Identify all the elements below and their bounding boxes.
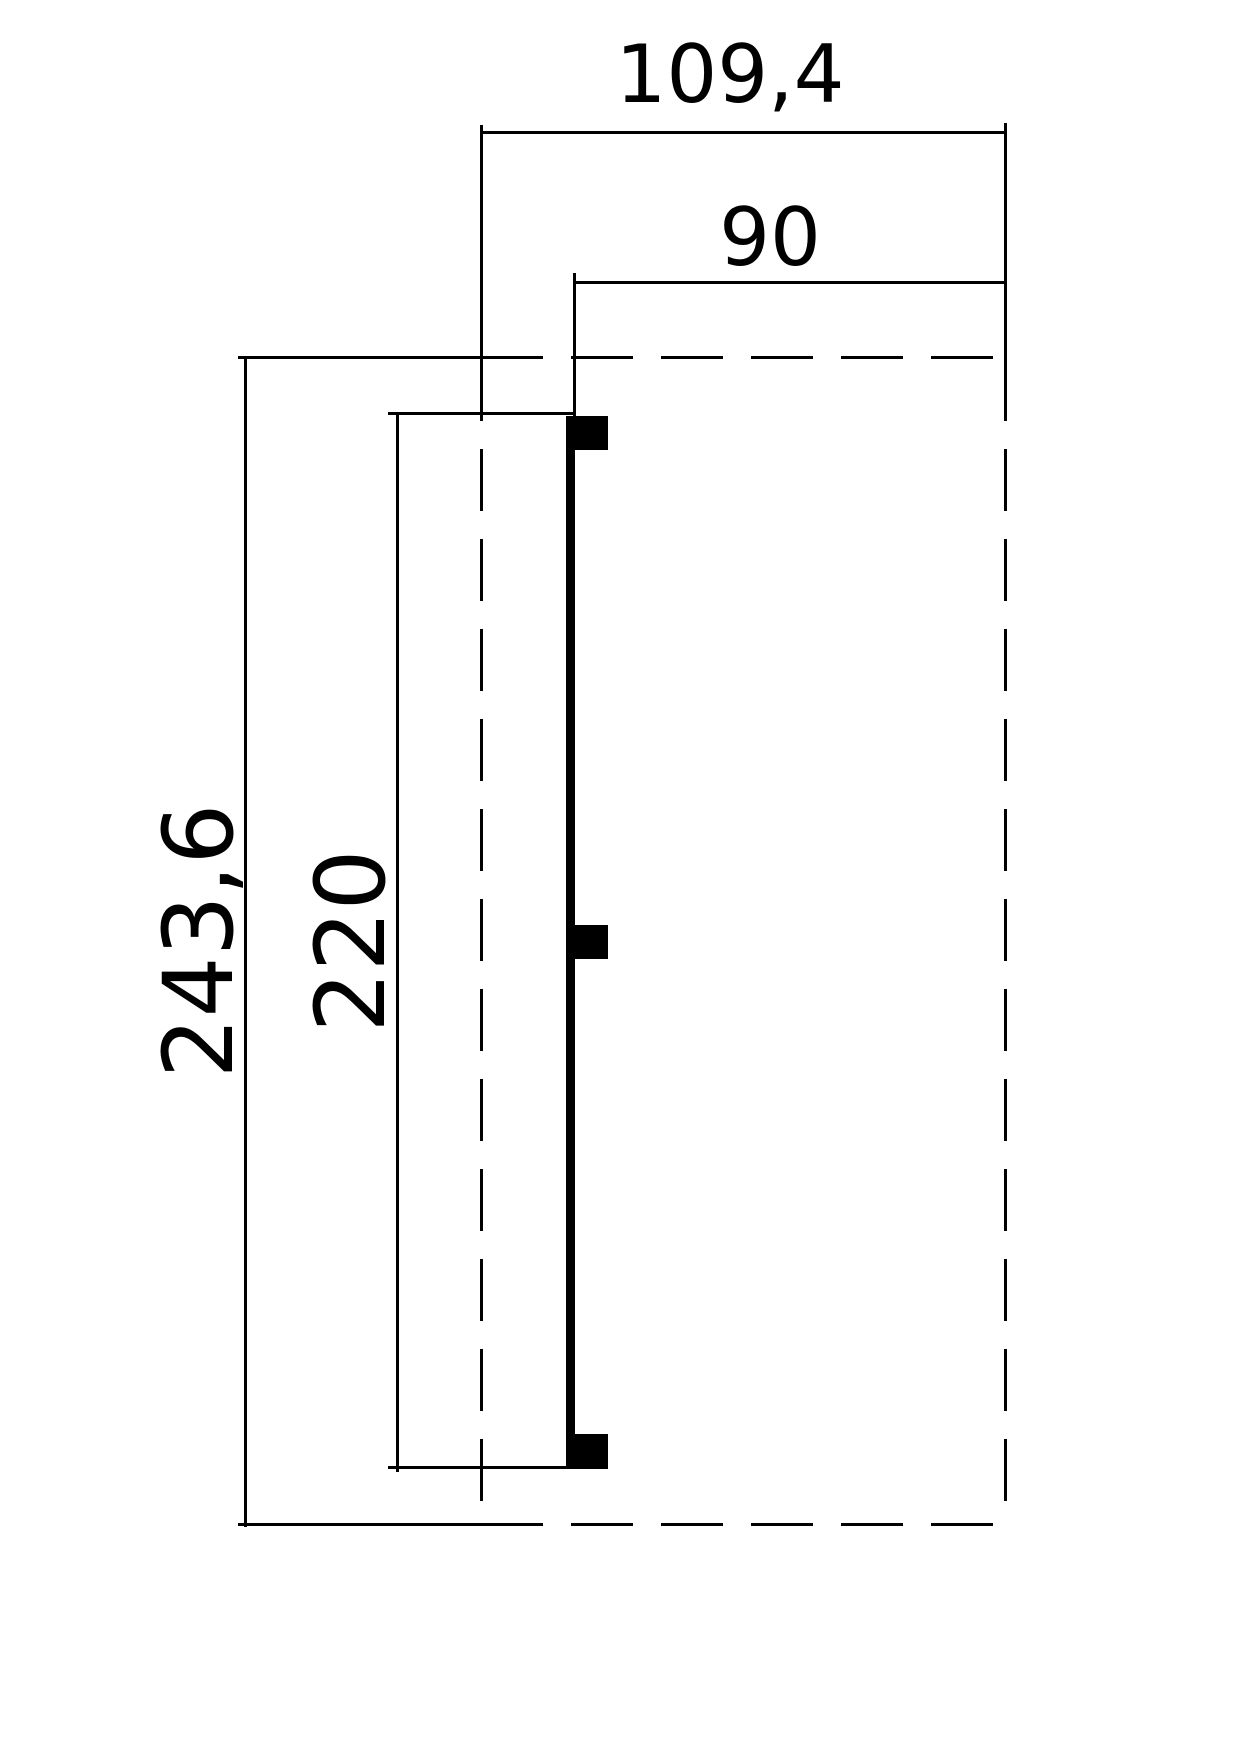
roof-outline-dashed-right (1004, 359, 1007, 1526)
extension-line-total-width-left (480, 125, 483, 359)
dimension-line-total-depth (244, 356, 247, 1527)
post-bottom (574, 1434, 608, 1468)
dimension-line-total-width (481, 131, 1006, 134)
roof-outline-dashed-bottom (481, 1523, 1005, 1526)
extension-line-total-depth-top (238, 356, 481, 359)
dimension-line-inner-width (574, 281, 1005, 284)
dimension-line-inner-depth (396, 412, 399, 1472)
dimension-label-inner-width: 90 (500, 193, 1040, 283)
post-top (574, 416, 608, 450)
technical-drawing-canvas: 109,4 90 243,6 220 (0, 0, 1240, 1754)
post-middle (574, 925, 608, 959)
roof-outline-dashed-top (481, 356, 1005, 359)
extension-line-inner-width-left (573, 273, 576, 416)
extension-line-total-depth-bottom (238, 1523, 481, 1526)
dimension-label-total-width: 109,4 (455, 30, 1005, 120)
dimension-label-total-depth: 243,6 (144, 741, 254, 1141)
roof-outline-dashed-left (480, 359, 483, 1526)
extension-line-total-width-right (1004, 123, 1007, 359)
dimension-label-inner-depth: 220 (296, 791, 406, 1091)
